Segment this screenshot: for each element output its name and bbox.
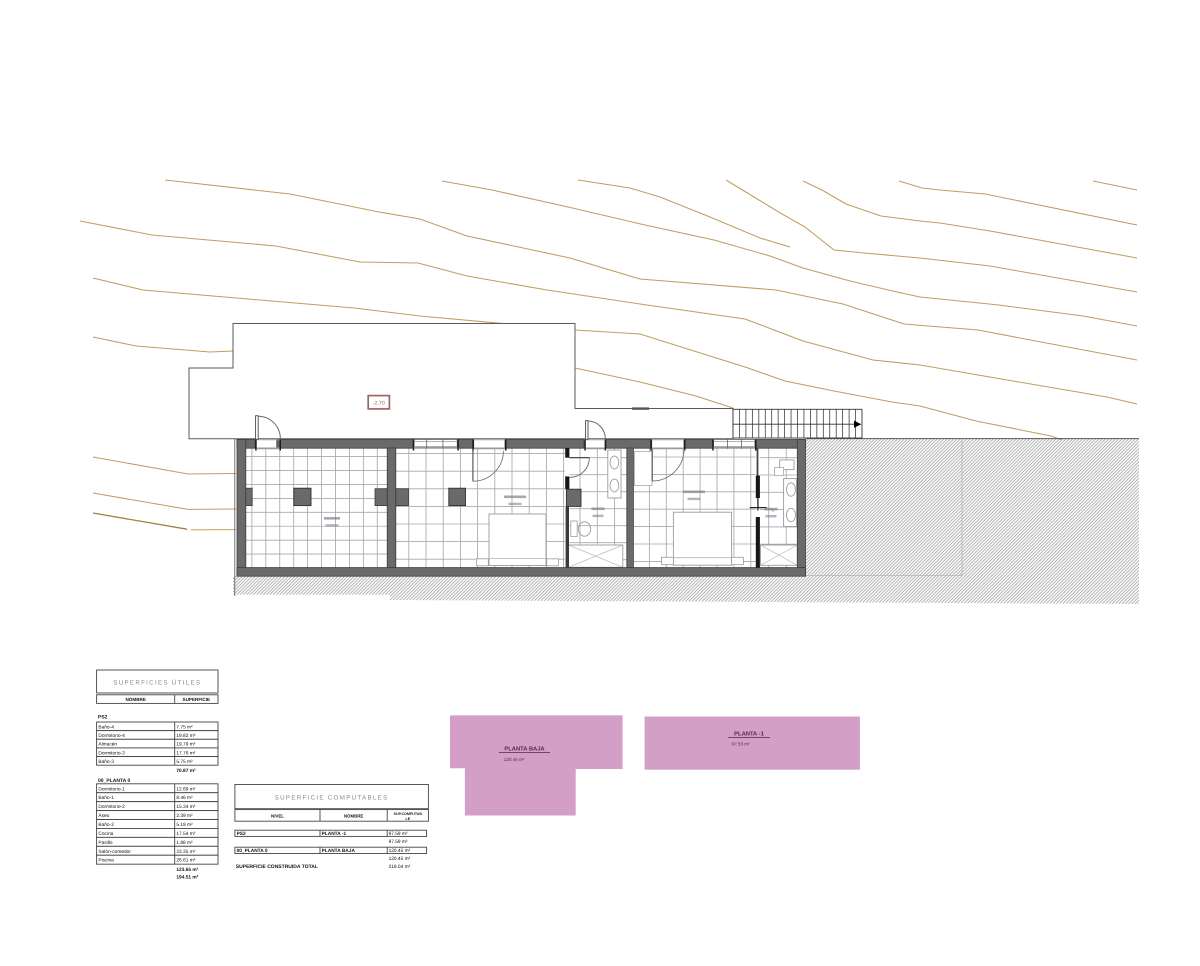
svg-text:15.34 m²: 15.34 m² bbox=[176, 804, 195, 810]
svg-text:SUPERFICIES ÚTILES: SUPERFICIES ÚTILES bbox=[113, 679, 201, 687]
svg-text:Cocina: Cocina bbox=[98, 831, 113, 837]
svg-text:SUP.COMPUTAB: SUP.COMPUTAB bbox=[394, 812, 423, 816]
svg-text:7.75 m²: 7.75 m² bbox=[176, 724, 193, 730]
svg-text:26.61 m²: 26.61 m² bbox=[176, 858, 195, 864]
svg-text:17.76 m²: 17.76 m² bbox=[176, 750, 195, 756]
svg-text:PS2: PS2 bbox=[237, 831, 246, 837]
svg-text:218.04 m²: 218.04 m² bbox=[389, 864, 411, 870]
svg-text:PS2: PS2 bbox=[98, 714, 108, 720]
svg-text:12.69 m²: 12.69 m² bbox=[176, 786, 195, 792]
svg-text:19.82 m²: 19.82 m² bbox=[176, 733, 195, 739]
svg-text:Baño-1: Baño-1 bbox=[98, 795, 114, 801]
svg-text:PLANTA BAJA: PLANTA BAJA bbox=[322, 848, 356, 854]
svg-text:120.45 m²: 120.45 m² bbox=[504, 757, 525, 762]
svg-text:33.35 m²: 33.35 m² bbox=[176, 849, 195, 855]
svg-text:LE: LE bbox=[406, 817, 411, 821]
svg-text:2.39 m²: 2.39 m² bbox=[176, 813, 193, 819]
svg-text:1.88 m²: 1.88 m² bbox=[176, 840, 193, 846]
svg-text:SUPERFICIE COMPUTABLES: SUPERFICIE COMPUTABLES bbox=[275, 795, 389, 802]
svg-text:Aseo: Aseo bbox=[98, 813, 109, 819]
svg-text:Piscina: Piscina bbox=[98, 858, 114, 864]
svg-text:SUPERFICIE CONSTRUIDA TOTAL: SUPERFICIE CONSTRUIDA TOTAL bbox=[236, 864, 318, 870]
svg-text:-2.70: -2.70 bbox=[373, 401, 385, 407]
svg-text:SUPERFICIE: SUPERFICIE bbox=[183, 697, 211, 702]
svg-text:97.59 m²: 97.59 m² bbox=[389, 839, 408, 845]
svg-text:NOMBRE: NOMBRE bbox=[125, 697, 145, 702]
svg-text:5.19 m²: 5.19 m² bbox=[176, 822, 193, 828]
svg-text:8.46 m²: 8.46 m² bbox=[176, 795, 193, 801]
svg-text:70.87 m²: 70.87 m² bbox=[176, 768, 196, 774]
svg-text:Almacén: Almacén bbox=[98, 742, 117, 748]
svg-text:PLANTA -1: PLANTA -1 bbox=[734, 731, 764, 737]
svg-text:Dormitorio-2: Dormitorio-2 bbox=[98, 804, 125, 810]
svg-text:NOMBRE: NOMBRE bbox=[344, 813, 364, 818]
svg-text:00_PLANTA 0: 00_PLANTA 0 bbox=[98, 778, 130, 784]
svg-text:97.59 m²: 97.59 m² bbox=[389, 831, 408, 837]
svg-text:Baño-2: Baño-2 bbox=[98, 822, 114, 828]
svg-text:Baño-3: Baño-3 bbox=[98, 759, 114, 765]
svg-text:97.59 m²: 97.59 m² bbox=[731, 742, 750, 747]
svg-text:17.54 m²: 17.54 m² bbox=[176, 831, 195, 837]
svg-text:Salón-comedor: Salón-comedor bbox=[98, 849, 131, 855]
svg-text:120.45 m²: 120.45 m² bbox=[389, 848, 411, 854]
svg-text:5.75 m²: 5.75 m² bbox=[176, 759, 193, 765]
svg-text:00_PLANTA 0: 00_PLANTA 0 bbox=[237, 848, 268, 854]
svg-text:PLANTA BAJA: PLANTA BAJA bbox=[504, 747, 545, 753]
svg-text:Dormitorio-1: Dormitorio-1 bbox=[98, 786, 125, 792]
svg-text:NIVEL: NIVEL bbox=[271, 813, 284, 818]
svg-text:123.65 m²: 123.65 m² bbox=[176, 867, 198, 873]
svg-text:PLANTA -1: PLANTA -1 bbox=[322, 831, 347, 837]
svg-text:19.79 m²: 19.79 m² bbox=[176, 742, 195, 748]
svg-text:Pasillo: Pasillo bbox=[98, 840, 112, 846]
svg-text:194.51 m²: 194.51 m² bbox=[176, 874, 198, 880]
svg-text:Baño-4: Baño-4 bbox=[98, 724, 114, 730]
svg-text:120.45 m²: 120.45 m² bbox=[389, 856, 411, 862]
svg-text:Dormitorio-4: Dormitorio-4 bbox=[98, 733, 125, 739]
svg-text:Dormitorio-3: Dormitorio-3 bbox=[98, 750, 125, 756]
